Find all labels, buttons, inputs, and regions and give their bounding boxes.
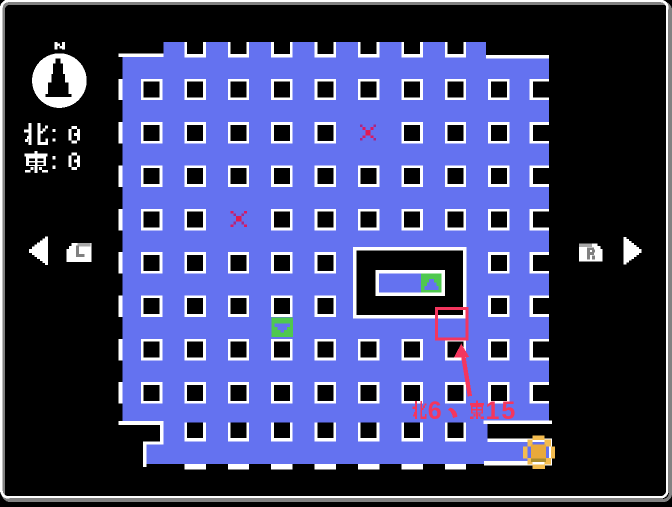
svg-text:6: 6	[428, 397, 442, 425]
svg-text:15: 15	[486, 397, 518, 425]
